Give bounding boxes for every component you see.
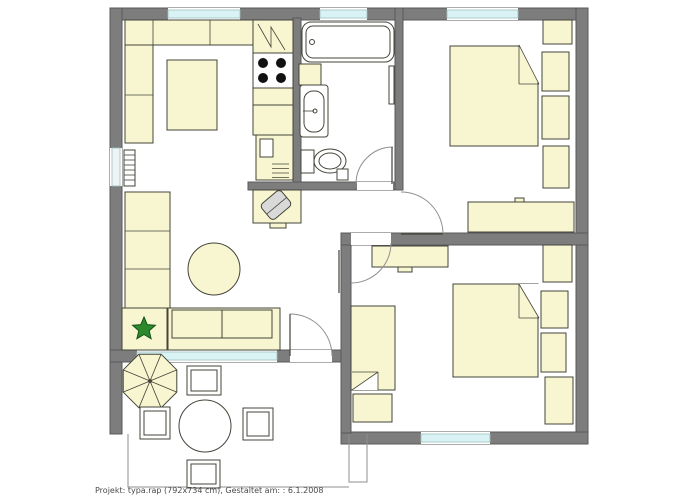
project-caption: Projekt: typa.rap (792x734 cm), Gestalte… <box>95 486 323 496</box>
toilet-bowl-inner <box>319 153 341 169</box>
double-bed <box>450 46 538 146</box>
wall-corridor-vertical <box>341 233 351 433</box>
window-bedroom1 <box>447 10 518 18</box>
nightstand <box>541 333 566 372</box>
cabinet <box>543 146 569 188</box>
room-bedroom2 <box>351 245 573 424</box>
stove-burner <box>258 73 268 83</box>
radiator <box>124 150 135 186</box>
stove-burner <box>258 58 268 68</box>
wall-right <box>576 8 588 444</box>
base-unit-drawer <box>260 139 273 157</box>
floor-box <box>337 169 348 180</box>
refrigerator <box>253 20 293 53</box>
bath-cabinet <box>299 64 321 85</box>
dresser <box>468 202 574 232</box>
counter-cabinet <box>253 88 293 105</box>
garden-table <box>179 400 231 452</box>
parasol <box>123 354 177 408</box>
corner-cabinet <box>543 245 572 282</box>
round-table <box>188 243 240 295</box>
door-gap-bathroom <box>357 182 393 190</box>
window-living-top <box>168 10 240 18</box>
floor-plan-svg <box>0 0 700 500</box>
window-bathroom <box>320 10 367 18</box>
bedside-table <box>353 394 392 422</box>
wall-bath-bedroom-divider <box>395 8 403 190</box>
garden-chair <box>187 366 221 395</box>
corner-sofa-top <box>125 20 267 45</box>
room-bedroom1 <box>450 20 574 232</box>
toilet-tank <box>301 150 314 173</box>
stove-burner <box>276 73 286 83</box>
door-gap-terrace <box>290 350 332 362</box>
bathtub-inner <box>306 26 390 58</box>
counter-cabinet <box>253 105 293 135</box>
nightstand <box>542 96 569 139</box>
double-bed <box>453 284 538 377</box>
terrace-outline <box>128 434 349 487</box>
corner-sofa-left <box>125 45 153 143</box>
door-bathroom <box>356 147 393 184</box>
sofa-cushion <box>172 310 222 338</box>
dresser-handle <box>515 198 524 202</box>
towel-radiator <box>389 66 394 104</box>
wall-left <box>110 8 122 434</box>
desk-drawer-tab <box>270 223 286 228</box>
garden-chair <box>140 407 170 439</box>
sofa-cushion <box>222 310 272 338</box>
desk-chair-tab <box>398 267 412 272</box>
cabinet <box>545 377 573 424</box>
window-left <box>112 148 120 186</box>
room-kitchen <box>253 20 293 180</box>
wall-shelf <box>125 192 170 308</box>
terrace-boundary <box>128 434 367 487</box>
nightstand <box>541 291 568 328</box>
stove-burner <box>276 58 286 68</box>
washbasin-bowl <box>304 91 324 132</box>
desk <box>372 246 448 267</box>
garden-chair <box>243 408 273 440</box>
nightstand <box>542 52 569 91</box>
window-bedroom2 <box>421 434 490 442</box>
door-bedroom1 <box>401 192 443 234</box>
room-bathroom <box>299 22 394 180</box>
corner-cabinet <box>543 20 572 44</box>
garden-chair <box>187 460 220 488</box>
floor-plan-page: Projekt: typa.rap (792x734 cm), Gestalte… <box>0 0 700 500</box>
room-terrace <box>123 354 273 488</box>
coffee-table <box>167 60 217 130</box>
door-gap-bedroom2 <box>351 233 391 245</box>
stove <box>253 53 293 88</box>
